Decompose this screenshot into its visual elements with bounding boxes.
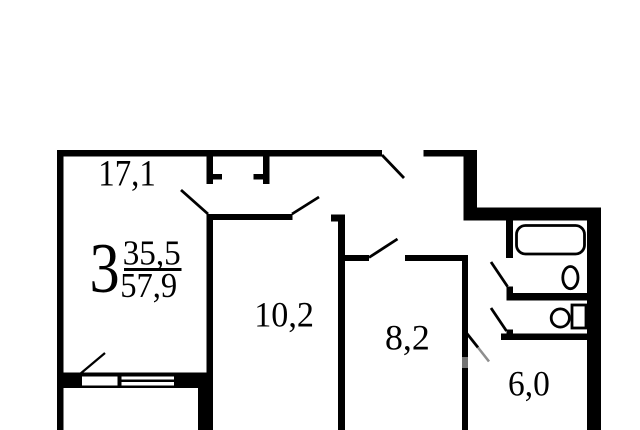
svg-text:3: 3 [90,230,120,309]
svg-text:8,2: 8,2 [385,318,430,358]
svg-text:6,0: 6,0 [508,363,550,403]
svg-text:57,9: 57,9 [120,267,177,305]
svg-text:17,1: 17,1 [98,153,156,194]
svg-text:10,2: 10,2 [254,295,314,335]
